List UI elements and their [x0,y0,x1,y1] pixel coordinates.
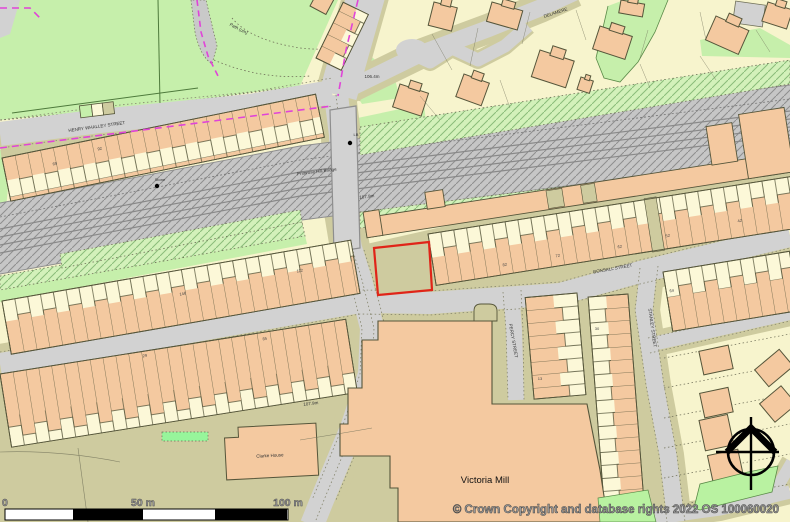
svg-text:50 m: 50 m [131,497,155,509]
svg-text:© Crown Copyright and database: © Crown Copyright and database rights 20… [453,504,779,516]
svg-text:Victoria Mill: Victoria Mill [461,475,509,486]
svg-text:Stone: Stone [155,177,166,182]
svg-text:30: 30 [595,326,600,331]
svg-text:106.4m: 106.4m [364,74,379,79]
svg-text:13: 13 [538,376,543,381]
svg-text:LB: LB [354,132,359,137]
svg-text:0: 0 [2,497,8,509]
svg-text:100 m: 100 m [273,497,303,509]
